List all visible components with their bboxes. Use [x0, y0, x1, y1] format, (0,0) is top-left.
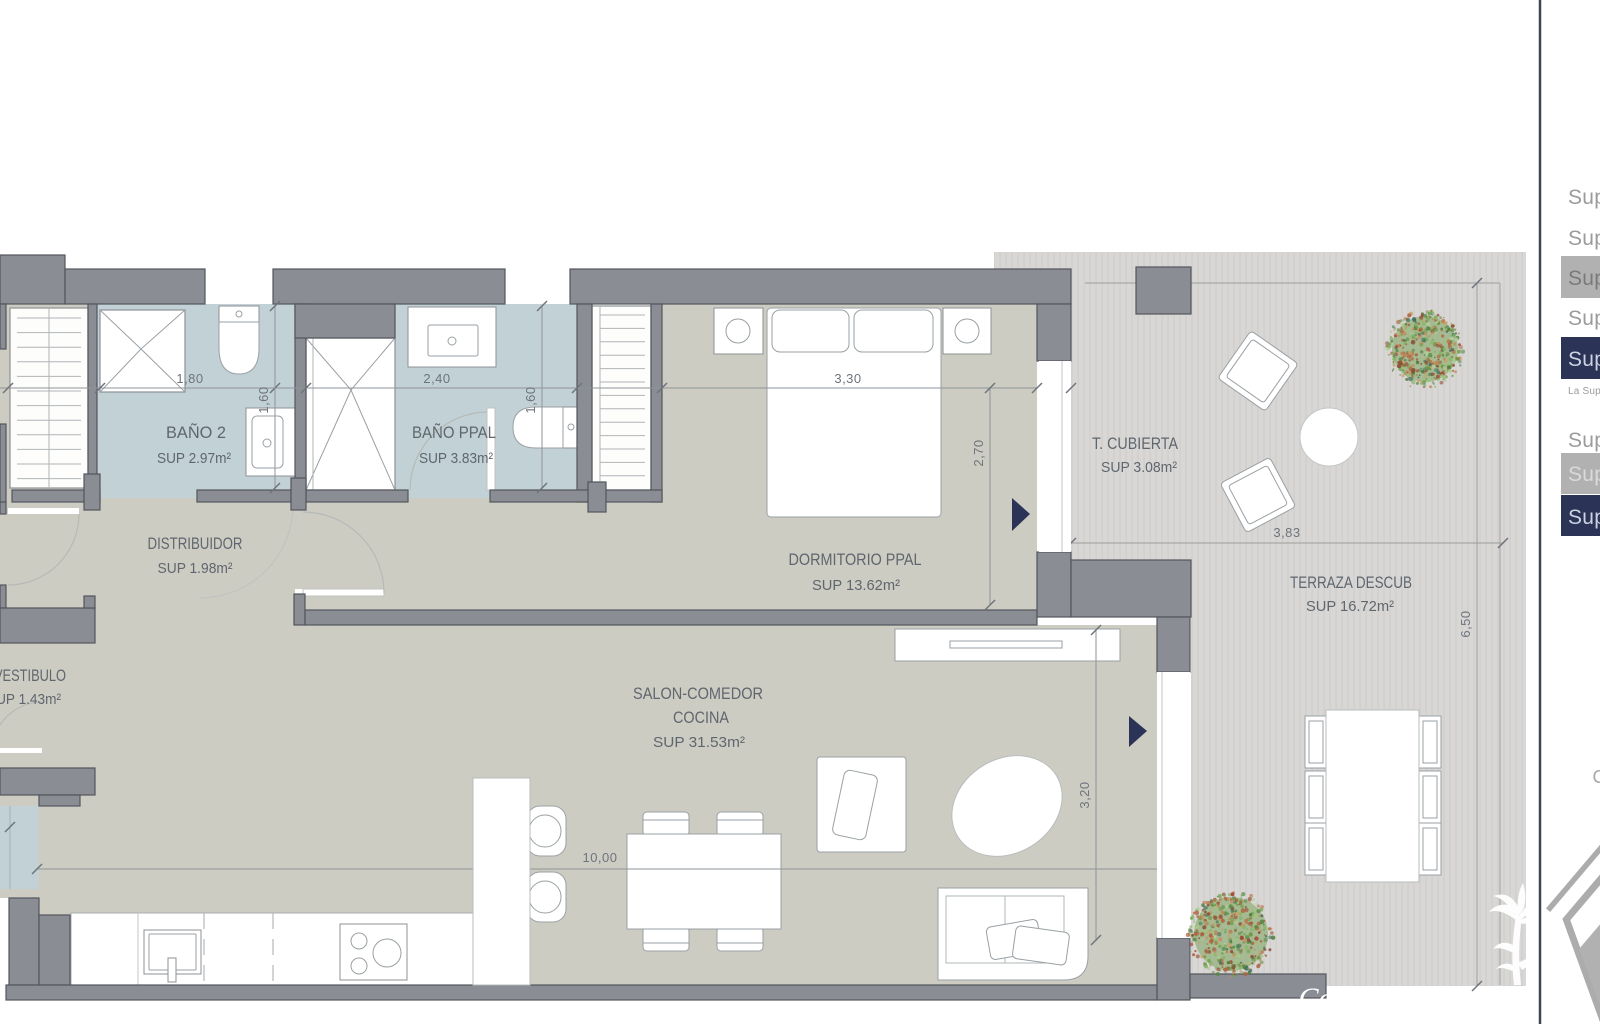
svg-text:1,60: 1,60	[256, 386, 271, 413]
svg-text:2,70: 2,70	[971, 439, 986, 466]
svg-text:SALON-COMEDOR: SALON-COMEDOR	[633, 684, 763, 703]
svg-text:SUP 16.72m²: SUP 16.72m²	[1306, 598, 1394, 615]
svg-text:DORMITORIO PPAL: DORMITORIO PPAL	[789, 550, 922, 569]
svg-text:DISTRIBUIDOR: DISTRIBUIDOR	[148, 534, 243, 553]
svg-text:SUP 1.43m²: SUP 1.43m²	[0, 691, 61, 708]
svg-text:Superficie: Superficie	[1568, 227, 1600, 250]
svg-text:2,40: 2,40	[423, 371, 450, 386]
svg-text:COCINA: COCINA	[673, 708, 730, 727]
svg-text:Superficie: Superficie	[1568, 307, 1600, 330]
svg-text:La Superficie: La Superficie	[1568, 386, 1600, 397]
svg-text:SUP 3.08m²: SUP 3.08m²	[1101, 459, 1177, 476]
svg-text:C: C	[1593, 767, 1600, 787]
svg-text:Superficie: Superficie	[1568, 348, 1600, 371]
svg-text:3,20: 3,20	[1077, 781, 1092, 808]
svg-text:Superficie: Superficie	[1568, 267, 1600, 290]
svg-text:Superficie: Superficie	[1568, 429, 1600, 452]
svg-text:VESTIBULO: VESTIBULO	[0, 666, 66, 685]
svg-text:6,50: 6,50	[1458, 610, 1473, 637]
svg-text:SUP 13.62m²: SUP 13.62m²	[812, 577, 900, 594]
svg-text:Superficie: Superficie	[1568, 506, 1600, 529]
svg-text:Co: Co	[1298, 982, 1333, 1015]
svg-text:BAÑO 2: BAÑO 2	[166, 423, 226, 442]
svg-text:Superficie: Superficie	[1568, 463, 1600, 486]
svg-text:1,80: 1,80	[176, 371, 203, 386]
svg-text:T. CUBIERTA: T. CUBIERTA	[1092, 434, 1179, 453]
svg-text:SUP 31.53m²: SUP 31.53m²	[653, 734, 745, 751]
svg-text:10,00: 10,00	[582, 850, 617, 865]
svg-text:BAÑO PPAL: BAÑO PPAL	[412, 423, 496, 442]
svg-text:1,60: 1,60	[523, 386, 538, 413]
svg-text:SUP 3.83m²: SUP 3.83m²	[419, 450, 493, 467]
svg-text:3,83: 3,83	[1273, 525, 1300, 540]
svg-text:TERRAZA DESCUB: TERRAZA DESCUB	[1290, 573, 1412, 592]
svg-text:Superficie: Superficie	[1568, 186, 1600, 209]
svg-text:3,30: 3,30	[834, 371, 861, 386]
svg-text:SUP 2.97m²: SUP 2.97m²	[157, 450, 231, 467]
svg-text:SUP 1.98m²: SUP 1.98m²	[158, 560, 233, 577]
